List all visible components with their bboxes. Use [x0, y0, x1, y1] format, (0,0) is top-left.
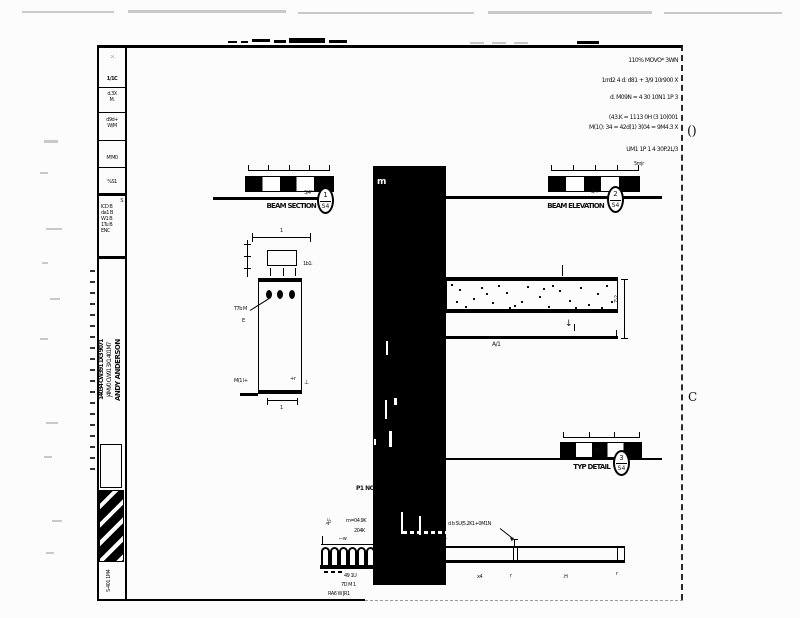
- section-note: +r: [290, 376, 295, 382]
- leader-note: d b SU(5.2K1+0M1N: [448, 521, 491, 527]
- section-inner-dim-box: [267, 250, 297, 266]
- callout-sheet: S4: [609, 202, 622, 209]
- dim-tick: [252, 233, 253, 242]
- callout-sheet: S4: [615, 465, 628, 472]
- dim-tick: [267, 398, 268, 405]
- scan-artifact-speck: [44, 456, 52, 458]
- scan-artifact-dash: [252, 39, 270, 42]
- scale-bar-tick: [268, 165, 269, 171]
- title-rule: [446, 196, 662, 199]
- title-cell: %S1: [99, 168, 125, 196]
- arch-shape: [330, 547, 339, 565]
- scale-bar-tick: [589, 432, 590, 438]
- title-cell: M'M0: [99, 141, 125, 168]
- bottom-under-note: 7D M 1: [341, 582, 356, 588]
- scale-bar-tick: [595, 165, 596, 171]
- beam-bottom-label: .H: [563, 574, 567, 580]
- callout-divider: [616, 463, 627, 464]
- arch-shape: [339, 547, 348, 565]
- title-rule: [213, 197, 333, 200]
- dim-tick: [244, 244, 251, 245]
- bottom-hook-note: ⌐w: [339, 536, 346, 542]
- beam-bottom-label: x4: [477, 574, 482, 580]
- scan-artifact-speck: [46, 228, 62, 230]
- divider-hook: [514, 539, 515, 546]
- scan-artifact-speck: [50, 298, 60, 300]
- scan-artifact-dash: [331, 571, 335, 573]
- dim-label: 1: [280, 405, 283, 411]
- black-region-glyph: m: [377, 177, 386, 187]
- section-note: M(1 l+: [234, 378, 248, 384]
- title-cell: :·: 1/1C: [99, 48, 125, 88]
- scan-artifact-line: [298, 12, 474, 14]
- section-bottom-dim-line: [267, 400, 297, 401]
- scale-bar-tick: [617, 165, 618, 171]
- rebar-dot: [277, 290, 283, 299]
- concrete-speckles: [451, 284, 453, 286]
- scale-note: 3/4": [591, 189, 599, 195]
- title-strip-cells: :·: 1/1C d.3X M. d9d+ W/M M'M0 %S1 S ICD…: [99, 48, 125, 259]
- firm-name-vertical: ANDY ANDERSON: [114, 305, 124, 435]
- arch-shape: [348, 547, 357, 565]
- black-region-white-mark: [374, 439, 376, 445]
- scale-bar-tick: [638, 165, 639, 171]
- firm-logo-block: [99, 490, 124, 562]
- firm-address-column: J4MV0 CW91 3X1 401M7: [106, 305, 114, 435]
- detail-title-beam-section: BEAM SECTION: [236, 202, 316, 210]
- beam-divider: [513, 546, 514, 563]
- title-cell-text: W/M: [99, 123, 125, 129]
- title-cell-text: %S1: [99, 179, 125, 185]
- scan-artifact-dash: [470, 42, 528, 44]
- arch-shape: [357, 547, 366, 565]
- rebar-dot: [289, 290, 295, 299]
- black-scan-region: [373, 166, 446, 585]
- scale-note: 7tu-3: [594, 448, 605, 454]
- scale-bar-tick: [309, 165, 310, 171]
- sheet-border-bottom-faint: [365, 600, 683, 601]
- section-base-line: [240, 393, 258, 396]
- scan-artifact-line: [664, 12, 782, 14]
- scale-bar-bracket: [563, 437, 640, 438]
- scale-bar-tick: [289, 165, 290, 171]
- firm-address-column: 14034 CW391 1X3 9071: [98, 305, 106, 435]
- bottom-note: m=04.9K: [346, 518, 366, 524]
- title-cell: S ICD B da1 B W1 B 1Tu B ENC: [99, 196, 125, 259]
- arch-base-line: [320, 565, 376, 569]
- bottom-note: 204K: [354, 528, 365, 534]
- section-top-dim-line: [252, 237, 310, 238]
- scale-bar-tick: [563, 432, 564, 438]
- general-note: M(1(): 34 = 42d(1) 3(04 = 9M4.3 X: [478, 124, 678, 131]
- callout-number: 3: [615, 454, 628, 462]
- beam-bottom-label: r: [616, 571, 618, 577]
- general-note: (43.K = 1113 0H (3 10(001: [478, 114, 678, 121]
- detail-callout-bubble: 1 S4: [317, 187, 334, 214]
- registration-mark-bottom: C: [688, 390, 697, 404]
- dim-tick: [310, 233, 311, 242]
- bottom-beam-outline: [444, 546, 625, 563]
- detail-title-typ-detail: TYP DETAIL: [540, 463, 610, 471]
- general-note: 1rrd2 4 d. d81 + 3/9 10r900 X: [478, 77, 678, 84]
- scan-artifact-speck: [42, 262, 48, 264]
- bottom-vertical-note: 4½: [326, 510, 334, 532]
- strip-tick-marks: [90, 270, 95, 470]
- left-dim-line: [247, 240, 248, 277]
- black-region-white-dashes: [403, 531, 446, 534]
- scan-artifact-dash: [338, 571, 342, 573]
- callout-number: 2: [609, 190, 622, 198]
- title-cell-text: M'M0: [99, 155, 125, 161]
- title-cell-text: M.: [99, 97, 125, 103]
- scale-bar-tick: [248, 165, 249, 171]
- title-strip-divider: [125, 45, 127, 600]
- scan-artifact-speck: [40, 172, 48, 174]
- detail-title-beam-elevation: BEAM ELEVATION: [520, 202, 604, 210]
- dim-tick: [270, 268, 271, 276]
- scan-artifact-speck: [40, 338, 48, 340]
- scanned-drawing-sheet: { "margin": { "corner_top": "()", "corne…: [0, 0, 800, 618]
- section-note: E: [242, 318, 245, 324]
- dim-tick: [295, 268, 296, 276]
- detail-callout-bubble: 2 S4: [607, 186, 624, 213]
- section-note: T7b M: [234, 306, 247, 312]
- beam-label: A/1: [492, 341, 500, 348]
- beam-soffit-line: [446, 336, 618, 339]
- scan-artifact-speck: [44, 140, 58, 143]
- scale-bar-tick: [573, 165, 574, 171]
- dim-label: 1b1:: [303, 261, 312, 267]
- scan-artifact-dash: [289, 38, 325, 43]
- callout-divider: [320, 201, 331, 202]
- beam-end-mark: r: [445, 537, 447, 543]
- stirrup-arches: [321, 547, 377, 565]
- beam-elevation-outline: [446, 277, 618, 313]
- dim-tick: [283, 268, 284, 276]
- beam-divider: [517, 546, 518, 563]
- beam-bottom-label: r: [510, 573, 512, 579]
- dim-tick: [244, 256, 251, 257]
- scan-artifact-speck: [52, 520, 62, 522]
- title-strip-empty-box: [100, 444, 122, 488]
- title-cell-text: :·:: [99, 54, 125, 60]
- scan-artifact-dash: [324, 571, 328, 573]
- scan-artifact-dash: [577, 41, 599, 44]
- arch-top-line: [321, 544, 375, 545]
- general-note: d. M09N = 4 30 10N1 1P 3: [478, 94, 678, 101]
- bottom-note-ph: P1 NC: [356, 485, 374, 492]
- scan-artifact-dash: [241, 41, 248, 43]
- grid-tick: [574, 324, 575, 331]
- registration-mark-top: (): [687, 124, 696, 139]
- dim-tick: [621, 279, 628, 280]
- callout-sheet: S4: [319, 203, 332, 210]
- section-note: ⊥: [304, 379, 309, 386]
- scale-note: 3/4": [304, 190, 312, 196]
- sheet-number-vertical: S-401 1M4: [106, 564, 118, 598]
- title-cell-text: 1/1C: [99, 76, 125, 82]
- scan-artifact-dash: [274, 40, 286, 43]
- bottom-under-note: 49 1U: [344, 573, 356, 579]
- divider-hook: [514, 539, 518, 540]
- scan-artifact-line: [128, 10, 286, 13]
- scan-artifact-dash: [228, 41, 237, 43]
- black-region-white-mark: [389, 431, 392, 447]
- beam-end-tick: [617, 548, 618, 561]
- dim-tick: [244, 268, 251, 269]
- callout-number: 1: [319, 191, 332, 199]
- dim-tick: [621, 338, 628, 339]
- dim-tick: [297, 398, 298, 405]
- scan-artifact-speck: [46, 422, 58, 424]
- scale-bar-tick: [551, 165, 552, 171]
- scale-bar-tick: [329, 165, 330, 171]
- leader-arrowhead: ▼: [510, 537, 513, 543]
- scale-bar-tick: [614, 432, 615, 438]
- title-cell-text: ENC: [101, 228, 125, 234]
- scan-artifact-speck: [46, 552, 54, 554]
- scan-artifact-dash: [329, 40, 347, 43]
- dim-label: 1: [280, 228, 283, 234]
- beam-dim-line: [624, 279, 625, 339]
- general-note: UM1 1P 1 4 30P.2L/3: [478, 146, 678, 153]
- scan-artifact-line: [22, 11, 114, 13]
- scan-artifact-line: [488, 11, 652, 14]
- general-note: 110% MOVO* 3WN: [478, 57, 678, 64]
- detail-callout-bubble: 3 S4: [613, 450, 630, 476]
- black-region-white-mark: [385, 400, 387, 419]
- scale-bar-tick: [639, 432, 640, 438]
- title-cell: d.3X M.: [99, 88, 125, 113]
- beam-dim-text: 7'-2: [614, 287, 623, 311]
- callout-divider: [610, 200, 621, 201]
- black-region-white-mark: [394, 398, 397, 405]
- sheet-border-bottom: [97, 599, 365, 601]
- rebar-dot: [266, 290, 272, 299]
- black-region-white-mark: [386, 341, 388, 355]
- arch-shape: [321, 547, 330, 565]
- grid-tick: [616, 330, 617, 336]
- grid-tick: [562, 265, 563, 276]
- down-arrow: ↓: [565, 319, 572, 329]
- title-cell: d9d+ W/M: [99, 113, 125, 141]
- arch-shape: [366, 547, 375, 565]
- bottom-under-note: RA6 W JR1: [328, 591, 350, 597]
